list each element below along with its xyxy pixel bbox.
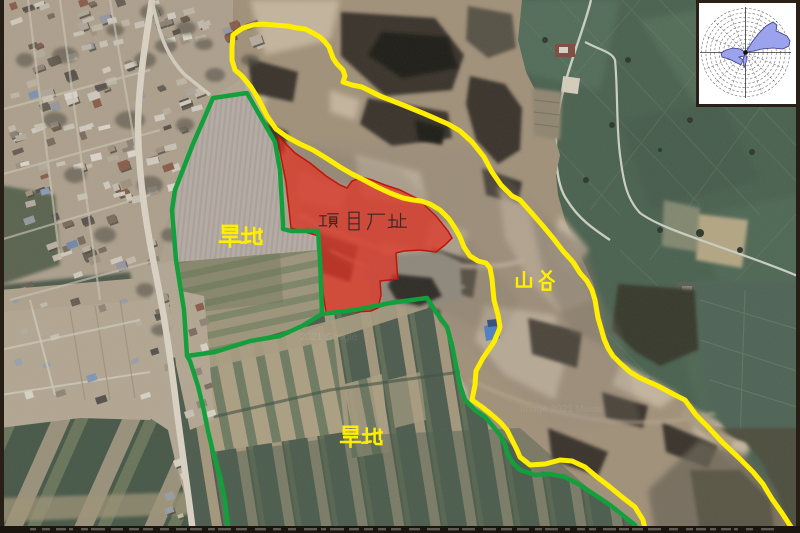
- svg-text:Image 2021 Maxar: Image 2021 Maxar: [520, 404, 604, 415]
- svg-text:2021 Google: 2021 Google: [300, 332, 358, 343]
